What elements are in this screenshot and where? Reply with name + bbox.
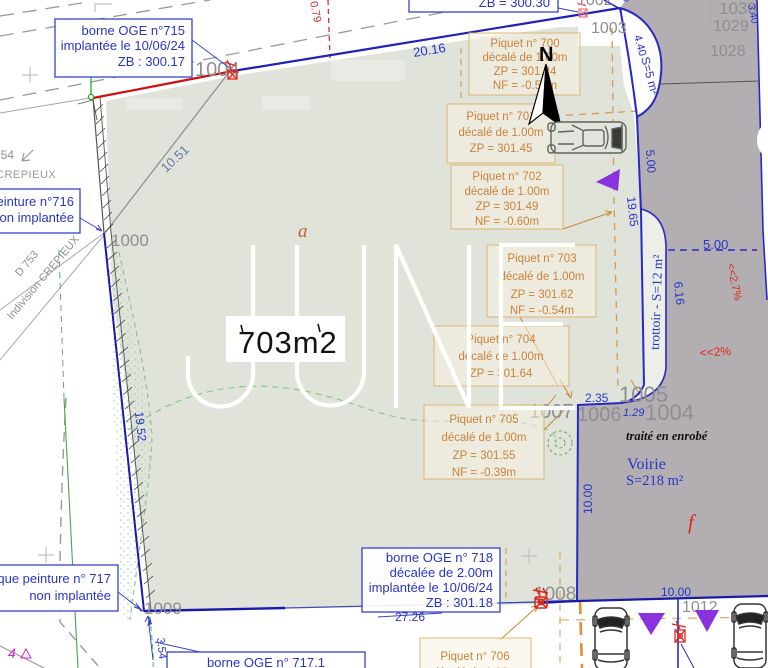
svg-text:1028: 1028 [710, 43, 746, 60]
svg-text:NF = -0.54m: NF = -0.54m [510, 305, 574, 317]
svg-text:einture n°716: einture n°716 [0, 194, 74, 209]
svg-text:Piquet n° 705: Piquet n° 705 [449, 414, 518, 426]
svg-text:1029: 1029 [713, 18, 749, 35]
svg-text:décalé de 1.00m: décalé de 1.00m [482, 52, 567, 64]
svg-text:ZP = 301.45: ZP = 301.45 [470, 143, 533, 155]
svg-text:4: 4 [8, 645, 16, 661]
svg-text:3.54: 3.54 [154, 637, 168, 660]
svg-text:5.00: 5.00 [643, 149, 659, 174]
svg-text:ZP = 301.55: ZP = 301.55 [453, 450, 516, 462]
svg-text:10.00: 10.00 [661, 585, 691, 599]
svg-text:N: N [539, 44, 553, 66]
svg-text:<<2%: <<2% [699, 344, 732, 360]
svg-text:traité en enrobé: traité en enrobé [626, 429, 708, 443]
svg-text:borne OGE n° 718: borne OGE n° 718 [386, 550, 493, 565]
svg-text:borne OGE n° 717.1: borne OGE n° 717.1 [207, 655, 325, 668]
svg-text:6.16: 6.16 [671, 281, 687, 306]
svg-text:S=218 m²: S=218 m² [626, 473, 684, 489]
svg-text:1003: 1003 [591, 20, 627, 37]
svg-text:implantée le 10/06/24: implantée le 10/06/24 [369, 580, 493, 595]
svg-text:Piquet n° 706: Piquet n° 706 [440, 651, 509, 663]
svg-text:1006: 1006 [577, 404, 622, 426]
svg-text:754: 754 [0, 148, 14, 162]
svg-text:ZP = 301.49: ZP = 301.49 [476, 201, 539, 213]
svg-text:borne OGE n°715: borne OGE n°715 [82, 23, 186, 38]
svg-text:1004: 1004 [645, 400, 694, 425]
svg-text:a: a [298, 221, 308, 242]
svg-text:décalé de 1.00m: décalé de 1.00m [458, 127, 543, 139]
svg-text:ZB = 300.30: ZB = 300.30 [479, 0, 550, 10]
svg-text:Voirie: Voirie [627, 456, 666, 473]
svg-text:5.00: 5.00 [703, 237, 728, 252]
svg-text:implantée le 10/06/24: implantée le 10/06/24 [61, 38, 185, 53]
svg-text:703m2: 703m2 [238, 325, 338, 360]
svg-text:Piquet n° 701: Piquet n° 701 [466, 111, 535, 123]
svg-text:décalée de 2.00m: décalée de 2.00m [390, 565, 493, 580]
svg-text:CREPIEUX: CREPIEUX [0, 169, 56, 181]
svg-text:on implantée: on implantée [0, 210, 74, 225]
svg-text:1009: 1009 [144, 599, 182, 618]
svg-text:Piquet n° 703: Piquet n° 703 [507, 253, 576, 265]
svg-text:rque peinture n° 717: rque peinture n° 717 [0, 571, 111, 586]
svg-text:NF = -0.60m: NF = -0.60m [475, 216, 539, 228]
svg-text:Piquet n° 702: Piquet n° 702 [472, 171, 541, 183]
svg-text:ZB : 300.17: ZB : 300.17 [118, 54, 185, 69]
svg-text:NF = -0.39m: NF = -0.39m [452, 467, 516, 479]
svg-text:1000: 1000 [111, 231, 149, 250]
svg-text:décalé de 1.00m: décalé de 1.00m [464, 186, 549, 198]
svg-text:ZP = 301.62: ZP = 301.62 [511, 289, 574, 301]
svg-text:décalé de 1.00m: décalé de 1.00m [499, 271, 584, 283]
svg-text:2.35: 2.35 [585, 391, 609, 405]
svg-text:10.00: 10.00 [581, 484, 595, 514]
svg-text:décalé de 1.00m: décalé de 1.00m [441, 432, 526, 444]
svg-text:non implantée: non implantée [29, 588, 111, 603]
svg-text:1.29: 1.29 [623, 407, 644, 419]
svg-text:ZB : 301.18: ZB : 301.18 [426, 595, 493, 610]
